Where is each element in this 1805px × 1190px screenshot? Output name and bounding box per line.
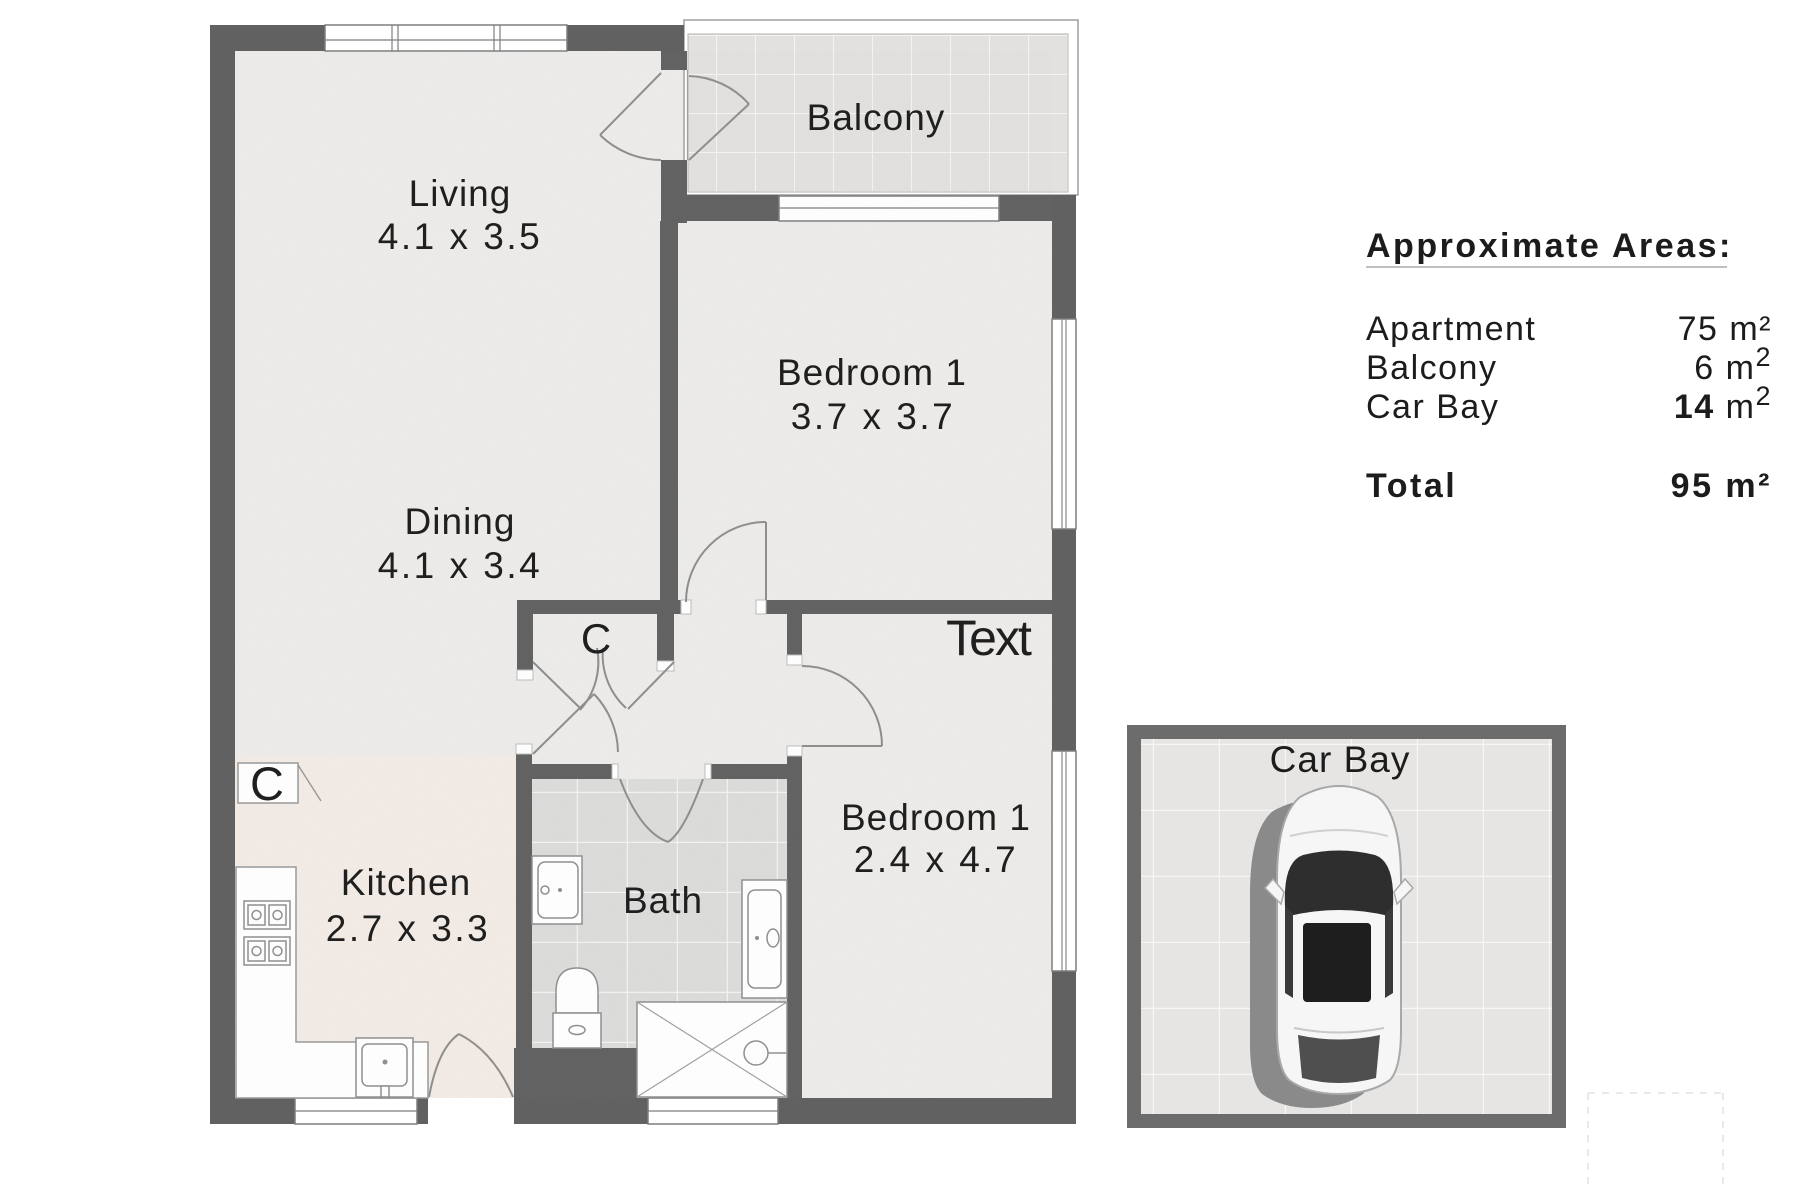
svg-text:2.4 x 4.7: 2.4 x 4.7	[854, 839, 1018, 880]
svg-text:95 m²: 95 m²	[1671, 467, 1772, 505]
svg-text:Bedroom 1: Bedroom 1	[777, 352, 967, 393]
svg-text:Kitchen: Kitchen	[341, 862, 471, 903]
svg-text:4.1 x 3.5: 4.1 x 3.5	[378, 216, 542, 257]
svg-text:2.7 x 3.3: 2.7 x 3.3	[326, 908, 490, 949]
svg-text:Total: Total	[1366, 467, 1457, 505]
svg-text:Approximate Areas:: Approximate Areas:	[1366, 227, 1733, 265]
svg-text:Dining: Dining	[405, 501, 516, 542]
svg-text:4.1 x 3.4: 4.1 x 3.4	[378, 545, 542, 586]
svg-text:Balcony: Balcony	[1366, 349, 1497, 387]
svg-text:Balcony: Balcony	[807, 97, 946, 138]
svg-text:Bath: Bath	[623, 880, 703, 921]
svg-text:C: C	[581, 615, 611, 662]
svg-text:Apartment: Apartment	[1366, 310, 1536, 348]
svg-text:Car Bay: Car Bay	[1366, 388, 1499, 426]
svg-text:Bedroom 1: Bedroom 1	[841, 797, 1031, 838]
svg-text:C: C	[250, 757, 284, 810]
svg-text:3.7 x 3.7: 3.7 x 3.7	[791, 396, 955, 437]
svg-text:Text: Text	[946, 610, 1032, 666]
svg-text:Living: Living	[409, 173, 512, 214]
svg-text:Car Bay: Car Bay	[1270, 739, 1411, 780]
